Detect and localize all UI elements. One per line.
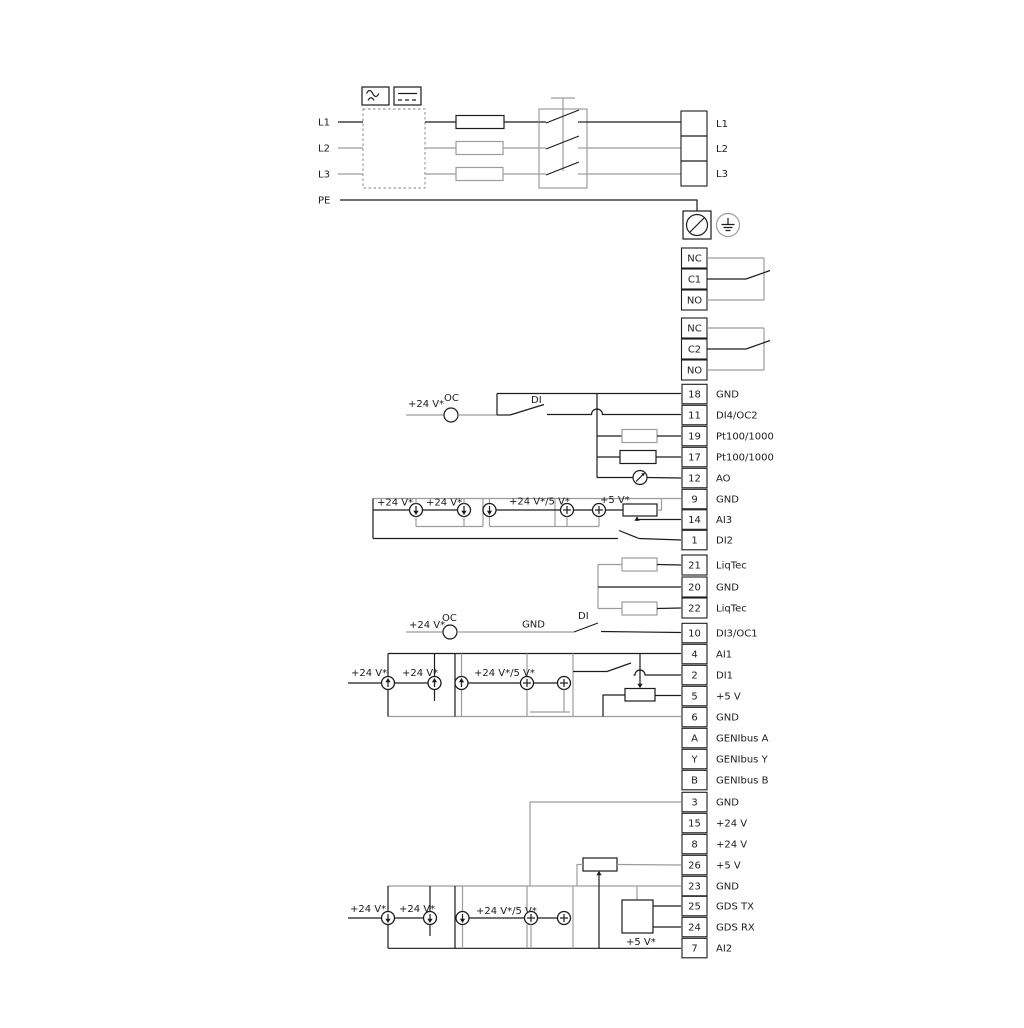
label-gnd-9: GND	[716, 495, 739, 506]
terminal-2: 2	[691, 671, 697, 682]
v24-label-ai3-b: +24 V*	[426, 498, 462, 509]
terminal-25: 25	[688, 902, 701, 913]
earth-ground-icon	[722, 218, 735, 231]
dc-symbol-box	[394, 87, 421, 105]
gds-sensor-box	[622, 900, 653, 933]
terminal-Y: Y	[690, 755, 698, 766]
ai2-potentiometer	[583, 858, 617, 871]
ai1-option-box1	[388, 654, 455, 717]
v24-label-ai2-a: +24 V*	[350, 904, 386, 915]
v24-label-io1: +24 V*	[408, 399, 444, 410]
fuse-l2	[456, 142, 503, 155]
label-genibus-a: GENIbus A	[716, 734, 769, 745]
terminal-12: 12	[688, 474, 701, 485]
pt100-sensor-19	[622, 430, 657, 443]
ai3-potentiometer	[623, 504, 657, 516]
terminal-B: B	[691, 776, 698, 787]
ai3-pot-to-gnd	[657, 499, 662, 511]
label-ai3: AI3	[716, 515, 732, 526]
label-gnd-3: GND	[716, 798, 739, 809]
terminal-A: A	[691, 734, 698, 745]
ai3-sensor-row: +24 V* +24 V* +24 V*/5 V* +5 V*	[373, 495, 681, 540]
emc-filter-box	[363, 109, 425, 188]
label-ai1: AI1	[716, 650, 732, 661]
ai2-sensor-row: +24 V* +24 V* +24 V*/5 V* +5 V*	[348, 802, 681, 948]
wire-gnd3-drop	[530, 802, 681, 886]
oc2-open-collector-icon	[444, 408, 458, 422]
terminal-19: 19	[688, 432, 701, 443]
mains-input-section: L1 L2 L3 PE	[318, 87, 740, 239]
terminal-21: 21	[688, 561, 701, 572]
wire-pe	[340, 200, 697, 211]
relay1-nc-text: NC	[687, 254, 701, 265]
ai2-option-box1	[388, 886, 455, 948]
ai1-c5-stub	[530, 690, 570, 713]
current-source-down-icon	[424, 912, 437, 925]
label-genibus-y: GENIbus Y	[716, 755, 769, 766]
wire-pot-5v-26	[617, 865, 681, 866]
v5-label-gds: +5 V*	[626, 937, 656, 948]
wire-ao-right	[647, 478, 681, 479]
current-source-down-icon	[382, 912, 395, 925]
terminal-17: 17	[688, 453, 701, 464]
label-di2: DI2	[716, 536, 733, 547]
terminal-label-l3: L3	[716, 169, 728, 180]
terminal-4: 4	[691, 650, 697, 661]
terminal-22: 22	[688, 604, 701, 615]
oc-label-di3: OC	[442, 613, 457, 624]
wire-liqtec-21	[657, 565, 681, 566]
di-label-di3: DI	[578, 611, 589, 622]
oc1-open-collector-icon	[443, 625, 457, 639]
label-gnd-18: GND	[716, 390, 739, 401]
relay2-section: NC C2 NO	[682, 318, 771, 380]
mains-terminal-block	[681, 111, 707, 186]
di-label-io1: DI	[531, 395, 542, 406]
mains-label-l3: L3	[318, 170, 330, 181]
mains-label-pe: PE	[318, 196, 330, 207]
wire-di2-out	[639, 539, 681, 541]
current-source-down-icon	[410, 504, 423, 517]
liqtec-sensor-21	[622, 558, 657, 571]
terminal-6: 6	[691, 713, 697, 724]
wire-ai3-signal	[637, 520, 681, 521]
ai2-option-box2	[463, 886, 528, 948]
label-liqtec-21: LiqTec	[716, 561, 747, 572]
label-gnd-23: GND	[716, 882, 739, 893]
terminal-15: 15	[688, 819, 701, 830]
oc-label-io1: OC	[444, 393, 459, 404]
relay2-contact-blade	[746, 341, 770, 350]
mains-label-l1: L1	[318, 118, 330, 129]
fuse-l1	[456, 116, 504, 129]
label-di3-oc1: DI3/OC1	[716, 629, 758, 640]
current-source-up-icon	[428, 677, 441, 690]
label-di1: DI1	[716, 671, 733, 682]
label-pt100-19: Pt100/1000	[716, 432, 774, 443]
label-genibus-b: GENIbus B	[716, 776, 769, 787]
io-block1: 18 11 19 17 12 9 14 1 GND DI4/OC2 Pt100/…	[682, 384, 774, 550]
pump-wiring-diagram: L1 L2 L3 PE	[0, 0, 1024, 1024]
label-liqtec-22: LiqTec	[716, 604, 747, 615]
liqtec-block: 21 20 22 LiqTec GND LiqTec	[598, 555, 747, 618]
io-block3: 3 15 8 26 23 25 24 7 GND +24 V +24 V +5 …	[682, 792, 755, 958]
v24-label-ai1-a: +24 V*	[351, 668, 387, 679]
relay2-no-text: NO	[687, 366, 702, 377]
terminal-18: 18	[688, 390, 701, 401]
label-5v: +5 V	[716, 692, 741, 703]
label-5v-26: +5 V	[716, 861, 741, 872]
voltage-source-plus-icon	[521, 677, 534, 690]
ai1-potentiometer	[625, 689, 655, 702]
liqtec-sensor-22	[622, 602, 657, 615]
relay1-section: NC C1 NO	[682, 248, 771, 310]
relay1-contact-blade	[746, 271, 770, 280]
terminal-label-l2: L2	[716, 144, 728, 155]
di1-switch-blade	[607, 663, 631, 672]
terminal-1: 1	[691, 536, 697, 547]
mains-label-l2: L2	[318, 144, 330, 155]
terminal-11: 11	[688, 411, 701, 422]
terminal-20: 20	[688, 583, 701, 594]
label-24v-8: +24 V	[716, 840, 747, 851]
terminal-label-l1: L1	[716, 119, 728, 130]
relay2-nc-text: NC	[687, 324, 701, 335]
v24-label-ai3-a: +24 V*	[377, 498, 413, 509]
voltage-source-plus-icon	[561, 504, 574, 517]
terminal-14: 14	[688, 515, 701, 526]
terminal-9: 9	[691, 495, 697, 506]
relay1-no-text: NO	[687, 296, 702, 307]
di3-switch-blade	[574, 623, 598, 632]
label-gnd-6: GND	[716, 713, 739, 724]
ai1-sensor-row: +24 V* +24 V* +24 V*/5 V*	[348, 654, 681, 717]
ai1-pot-wiper-arrow	[637, 684, 642, 689]
wire-di3-out	[601, 632, 681, 633]
wire-liqtec-22	[657, 608, 681, 609]
v24-label-di3: +24 V*	[409, 620, 445, 631]
label-gnd-20: GND	[716, 583, 739, 594]
label-gds-tx: GDS TX	[716, 902, 754, 913]
label-pt100-17: Pt100/1000	[716, 453, 774, 464]
v24v5-label-ai3: +24 V*/5 V*	[509, 497, 570, 508]
label-24v-15: +24 V	[716, 819, 747, 830]
pt100-sensor-17	[620, 451, 656, 464]
current-source-down-icon	[458, 504, 471, 517]
terminal-8: 8	[691, 840, 697, 851]
terminal-10: 10	[688, 629, 701, 640]
wire-di1-out	[634, 670, 682, 675]
io-block2: 10 4 2 5 6 A Y B DI3/OC1 AI1 DI1 +5 V GN…	[682, 623, 769, 790]
ai3-c4-c5-stubs	[555, 517, 599, 527]
current-source-up-icon	[382, 677, 395, 690]
label-di4-oc2: DI4/OC2	[716, 411, 758, 422]
relay1-c1-text: C1	[688, 275, 701, 286]
current-source-up-icon	[455, 677, 468, 690]
di2-switch-blade	[619, 531, 639, 539]
voltage-source-plus-icon	[525, 912, 538, 925]
gnd-label-di3: GND	[522, 620, 545, 631]
terminal-3: 3	[691, 798, 697, 809]
terminal-5: 5	[691, 692, 697, 703]
wire-di4-out	[547, 409, 681, 414]
relay2-c2-text: C2	[688, 345, 701, 356]
di4-switch-blade	[510, 405, 544, 416]
terminal-26: 26	[688, 861, 701, 872]
wiring-diagram-page: L1 L2 L3 PE	[0, 0, 1024, 1024]
ai1-option-box2	[462, 654, 528, 717]
voltage-source-plus-icon	[558, 677, 571, 690]
fuse-l3	[456, 168, 503, 181]
ai2-pot-to-gnd	[577, 865, 583, 887]
current-source-down-icon	[456, 912, 469, 925]
voltage-source-plus-icon	[558, 912, 571, 925]
current-source-down-icon	[483, 504, 496, 517]
io1-wiring: +24 V* OC DI	[406, 393, 681, 485]
terminal-23: 23	[688, 882, 701, 893]
terminal-7: 7	[691, 944, 697, 955]
label-ai2: AI2	[716, 944, 732, 955]
label-ao: AO	[716, 474, 731, 485]
label-gds-rx: GDS RX	[716, 923, 755, 934]
ai1-pot-to-gnd	[603, 695, 625, 717]
terminal-24: 24	[688, 923, 701, 934]
